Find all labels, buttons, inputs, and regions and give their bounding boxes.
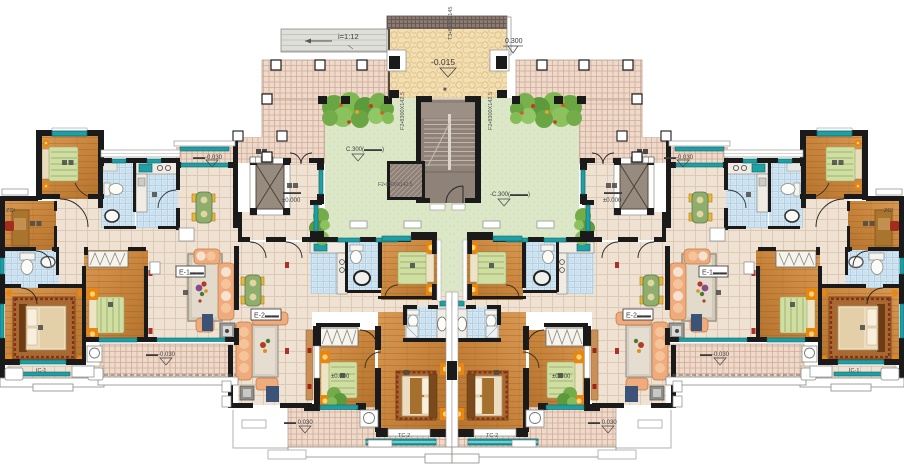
svg-text:T3•8300X145: T3•8300X145 [448, 7, 454, 40]
svg-text:F2•9300X142.5: F2•9300X142.5 [378, 182, 413, 188]
svg-text:▬▬▬: ▬▬▬ [604, 190, 622, 196]
svg-text:ZCI: ZCI [884, 208, 893, 214]
svg-text:E-2▬▬: E-2▬▬ [254, 313, 279, 320]
svg-text:E-2▬▬: E-2▬▬ [626, 313, 651, 320]
svg-text:F2•8300X142.5: F2•8300X142.5 [400, 92, 406, 130]
svg-text:C.300(▬▬▬): C.300(▬▬▬) [346, 147, 384, 153]
svg-text:±0.000: ±0.000 [603, 198, 622, 204]
svg-text:E-1▬▬: E-1▬▬ [702, 270, 727, 277]
svg-text:■: ■ [443, 87, 447, 93]
svg-text:±0.000: ±0.000 [282, 198, 301, 204]
svg-text:ZCI: ZCI [6, 208, 15, 214]
svg-text:F2•8300X142.5: F2•8300X142.5 [488, 92, 494, 130]
svg-text:▬▬-0.030: ▬▬-0.030 [700, 352, 730, 358]
svg-text:IC-1: IC-1 [849, 368, 859, 374]
svg-text:-C.300(▬▬▬): -C.300(▬▬▬) [490, 192, 530, 198]
svg-text:TC-2: TC-2 [486, 433, 498, 439]
svg-text:TC-2: TC-2 [398, 433, 410, 439]
svg-text:▬▬ 0.030: ▬▬ 0.030 [588, 420, 617, 426]
svg-text:IC-1: IC-1 [36, 368, 46, 374]
svg-text:▬▬-0.030: ▬▬-0.030 [146, 352, 176, 358]
svg-text:0.300: 0.300 [505, 38, 523, 45]
svg-text:i=1:12: i=1:12 [338, 32, 359, 41]
svg-text:-0.015: -0.015 [431, 57, 455, 67]
svg-text:▬▬ 0.030: ▬▬ 0.030 [284, 420, 313, 426]
svg-text:▬▬▬: ▬▬▬ [283, 190, 301, 196]
svg-text:E-1▬▬: E-1▬▬ [179, 270, 204, 277]
